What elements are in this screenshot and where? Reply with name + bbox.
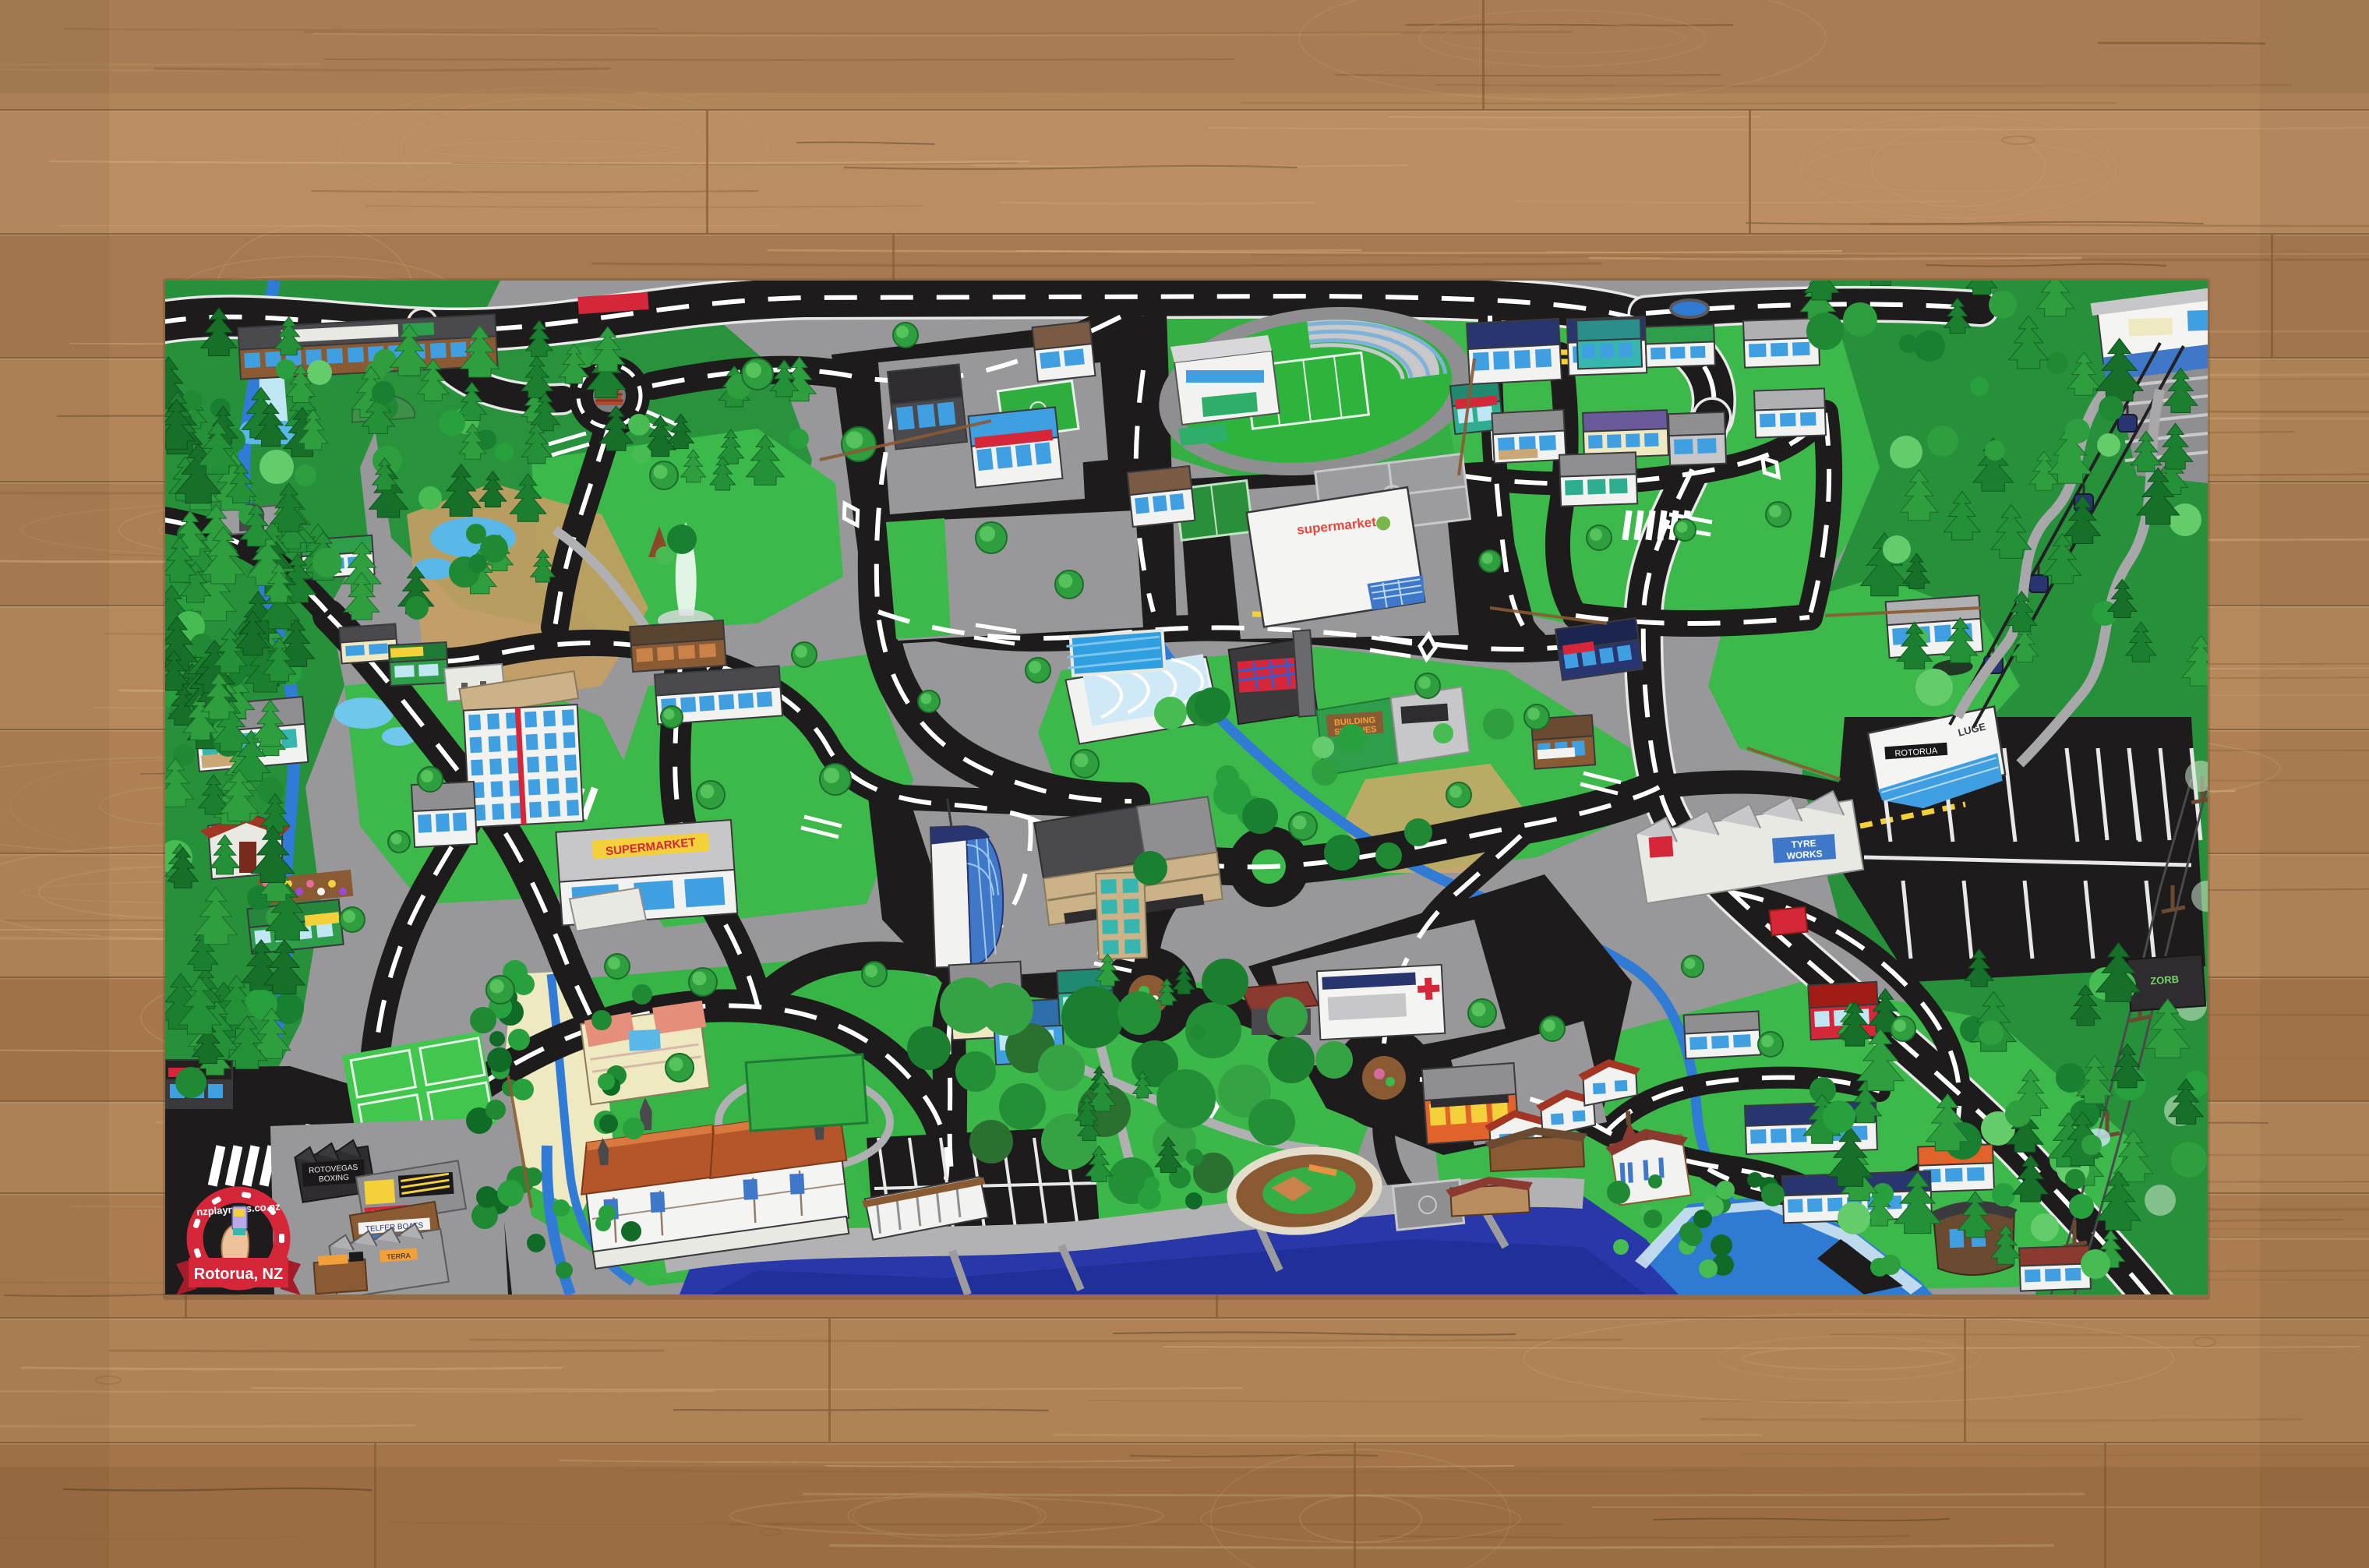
svg-text:Rotorua, NZ: Rotorua, NZ — [194, 1266, 283, 1283]
svg-text:ZORB: ZORB — [2150, 973, 2180, 987]
svg-text:TERRA: TERRA — [387, 1252, 411, 1261]
